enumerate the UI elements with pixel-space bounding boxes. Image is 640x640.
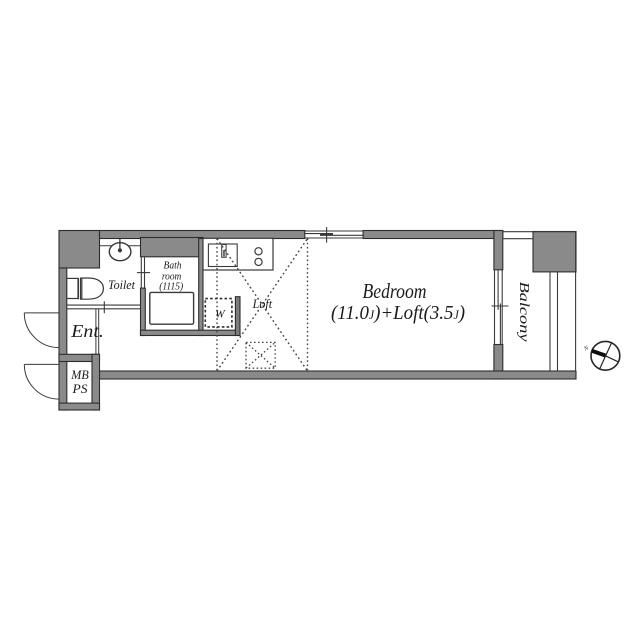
svg-text:MB: MB (70, 367, 88, 382)
svg-text:Toilet: Toilet (108, 278, 136, 292)
svg-text:Balcony: Balcony (517, 282, 532, 342)
svg-text:PS: PS (71, 381, 88, 396)
svg-text:Loft: Loft (252, 297, 273, 311)
svg-text:Bedroom: Bedroom (363, 279, 427, 303)
svg-text:Ent.: Ent. (70, 321, 104, 341)
svg-text:(1115): (1115) (159, 281, 183, 292)
svg-text:(11.0J)+Loft(3.5J): (11.0J)+Loft(3.5J) (331, 302, 465, 324)
svg-text:W: W (215, 309, 226, 321)
svg-text:Bath: Bath (164, 261, 182, 272)
